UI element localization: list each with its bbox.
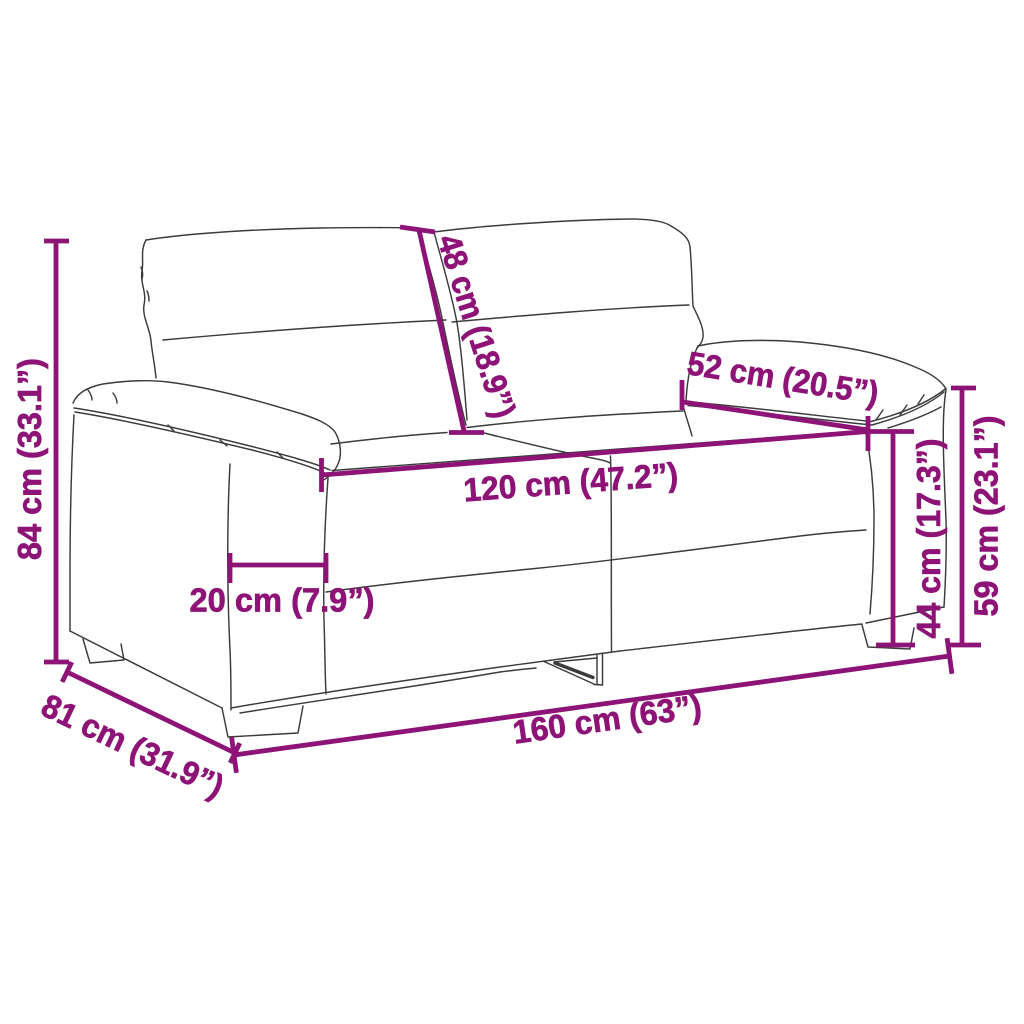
- svg-text:59 cm (23.1”): 59 cm (23.1”): [967, 416, 1004, 617]
- svg-text:44 cm (17.3”): 44 cm (17.3”): [910, 439, 947, 639]
- svg-text:84 cm (33.1”): 84 cm (33.1”): [11, 358, 48, 560]
- svg-text:52 cm (20.5”): 52 cm (20.5”): [685, 344, 881, 411]
- svg-text:48 cm (18.9”): 48 cm (18.9”): [431, 230, 524, 422]
- svg-text:20 cm (7.9”): 20 cm (7.9”): [190, 581, 375, 618]
- svg-text:160 cm (63”): 160 cm (63”): [510, 687, 703, 750]
